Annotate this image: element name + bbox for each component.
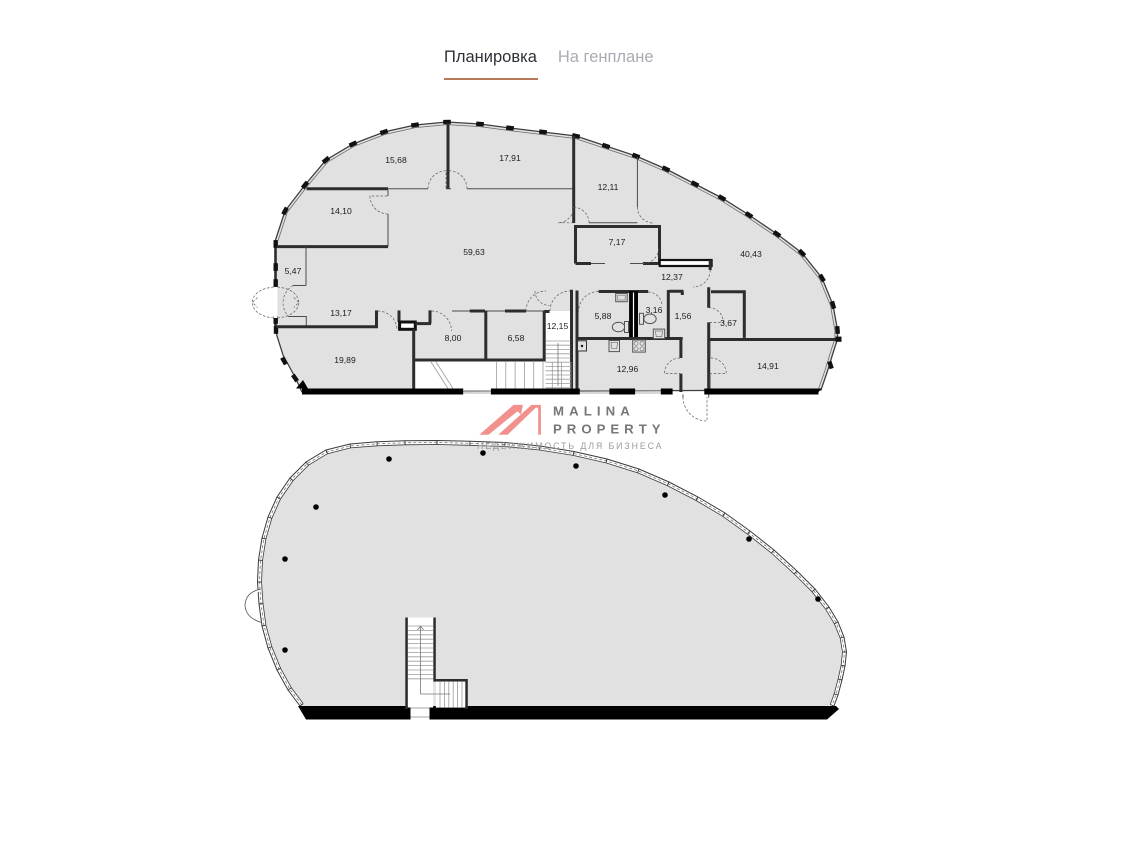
svg-text:3,16: 3,16 <box>646 305 663 315</box>
svg-text:5,47: 5,47 <box>285 266 302 276</box>
svg-text:40,43: 40,43 <box>740 249 762 259</box>
svg-text:12,15: 12,15 <box>547 321 569 331</box>
svg-text:6,58: 6,58 <box>508 333 525 343</box>
svg-text:17,91: 17,91 <box>499 153 521 163</box>
svg-text:13,17: 13,17 <box>330 308 352 318</box>
svg-text:12,37: 12,37 <box>661 272 683 282</box>
svg-text:НЕДВИЖИМОСТЬ ДЛЯ БИЗНЕСА: НЕДВИЖИМОСТЬ ДЛЯ БИЗНЕСА <box>477 441 663 451</box>
svg-text:PROPERTY: PROPERTY <box>553 422 666 437</box>
svg-text:8,00: 8,00 <box>445 333 462 343</box>
svg-text:MALINA: MALINA <box>553 404 635 419</box>
svg-text:14,10: 14,10 <box>330 206 352 216</box>
svg-text:5,88: 5,88 <box>595 311 612 321</box>
svg-text:12,96: 12,96 <box>617 364 639 374</box>
svg-text:1,56: 1,56 <box>675 311 692 321</box>
svg-text:12,11: 12,11 <box>598 182 619 192</box>
svg-text:3,67: 3,67 <box>720 318 737 328</box>
svg-text:19,89: 19,89 <box>334 355 356 365</box>
svg-text:59,63: 59,63 <box>463 247 485 257</box>
svg-text:14,91: 14,91 <box>757 361 779 371</box>
svg-text:7,17: 7,17 <box>609 237 626 247</box>
svg-text:15,68: 15,68 <box>385 155 407 165</box>
